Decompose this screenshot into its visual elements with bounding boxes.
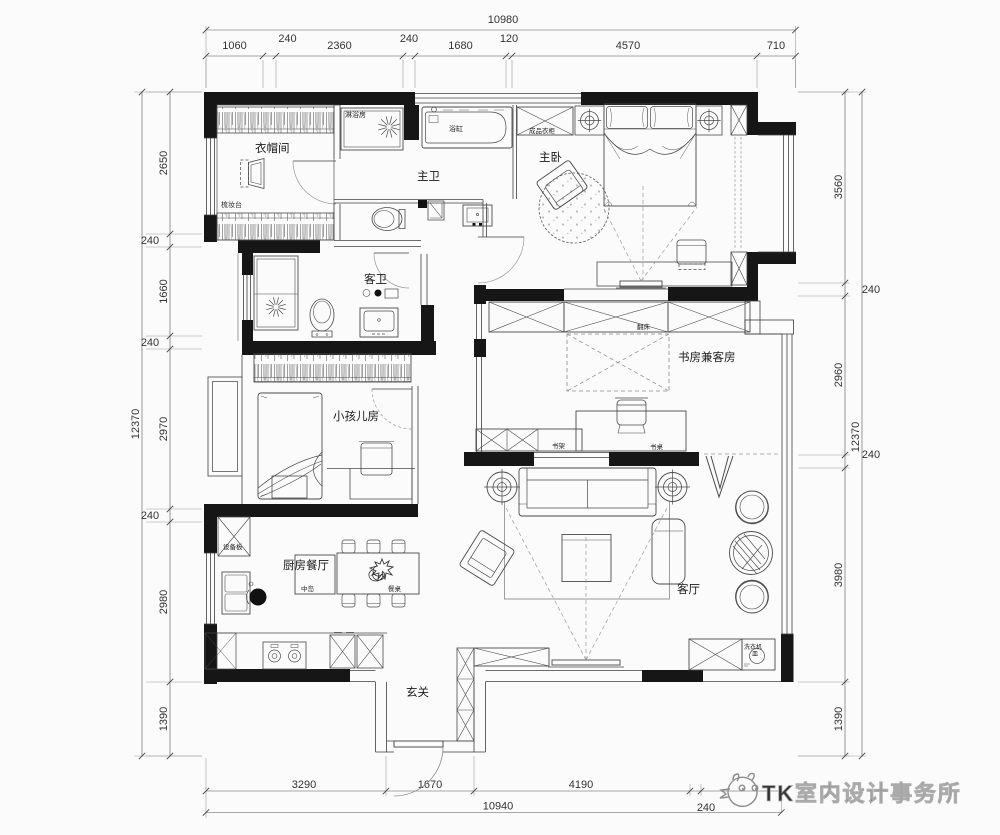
svg-text:710: 710 [767, 40, 785, 52]
svg-text:240: 240 [400, 33, 418, 45]
svg-text:主卫: 主卫 [417, 170, 440, 183]
svg-text:1680: 1680 [448, 40, 472, 52]
svg-text:10980: 10980 [488, 14, 519, 26]
svg-text:3290: 3290 [292, 779, 316, 791]
svg-text:TK室内设计事务所: TK室内设计事务所 [762, 781, 962, 806]
svg-text:主卧: 主卧 [539, 151, 562, 164]
svg-text:1660: 1660 [158, 279, 170, 303]
svg-text:12370: 12370 [130, 409, 142, 440]
svg-text:1390: 1390 [158, 707, 170, 731]
svg-text:12370: 12370 [850, 422, 862, 453]
svg-text:书房兼客房: 书房兼客房 [678, 350, 736, 364]
svg-text:成品衣柜: 成品衣柜 [529, 126, 556, 135]
svg-text:淋浴房: 淋浴房 [345, 110, 366, 119]
svg-text:客卫: 客卫 [364, 272, 387, 286]
svg-text:浴缸: 浴缸 [449, 124, 463, 133]
svg-text:2360: 2360 [327, 40, 351, 52]
svg-text:1390: 1390 [833, 707, 845, 731]
svg-text:翻床: 翻床 [637, 322, 651, 331]
svg-text:240: 240 [141, 337, 159, 349]
svg-text:240: 240 [141, 235, 159, 247]
svg-text:梳妆台: 梳妆台 [221, 200, 242, 209]
svg-text:3980: 3980 [833, 563, 845, 587]
svg-text:240: 240 [697, 802, 715, 814]
svg-text:2980: 2980 [158, 590, 170, 614]
svg-text:衣帽间: 衣帽间 [255, 141, 290, 155]
svg-text:2970: 2970 [158, 417, 170, 441]
svg-text:3560: 3560 [833, 175, 845, 199]
svg-text:240: 240 [862, 449, 880, 461]
svg-text:240: 240 [278, 33, 296, 45]
svg-text:2650: 2650 [158, 151, 170, 175]
svg-text:1060: 1060 [222, 40, 246, 52]
svg-text:4570: 4570 [616, 40, 640, 52]
svg-text:客厅: 客厅 [677, 582, 700, 596]
svg-text:设备板: 设备板 [223, 542, 243, 551]
svg-text:玄关: 玄关 [406, 685, 429, 699]
svg-text:240: 240 [141, 510, 159, 522]
svg-text:书桌: 书桌 [650, 442, 664, 451]
svg-text:4190: 4190 [569, 779, 593, 791]
svg-text:厨房餐厅: 厨房餐厅 [283, 558, 329, 572]
svg-text:120: 120 [500, 33, 518, 45]
svg-text:小孩儿房: 小孩儿房 [333, 410, 379, 423]
svg-text:书架: 书架 [552, 441, 566, 450]
svg-text:中岛: 中岛 [301, 584, 314, 593]
svg-text:2960: 2960 [833, 363, 845, 387]
svg-text:240: 240 [862, 284, 880, 296]
svg-text:皿: 皿 [752, 651, 758, 658]
svg-text:洗衣机: 洗衣机 [744, 643, 762, 651]
svg-text:餐桌: 餐桌 [388, 584, 402, 593]
svg-text:10940: 10940 [483, 801, 514, 813]
